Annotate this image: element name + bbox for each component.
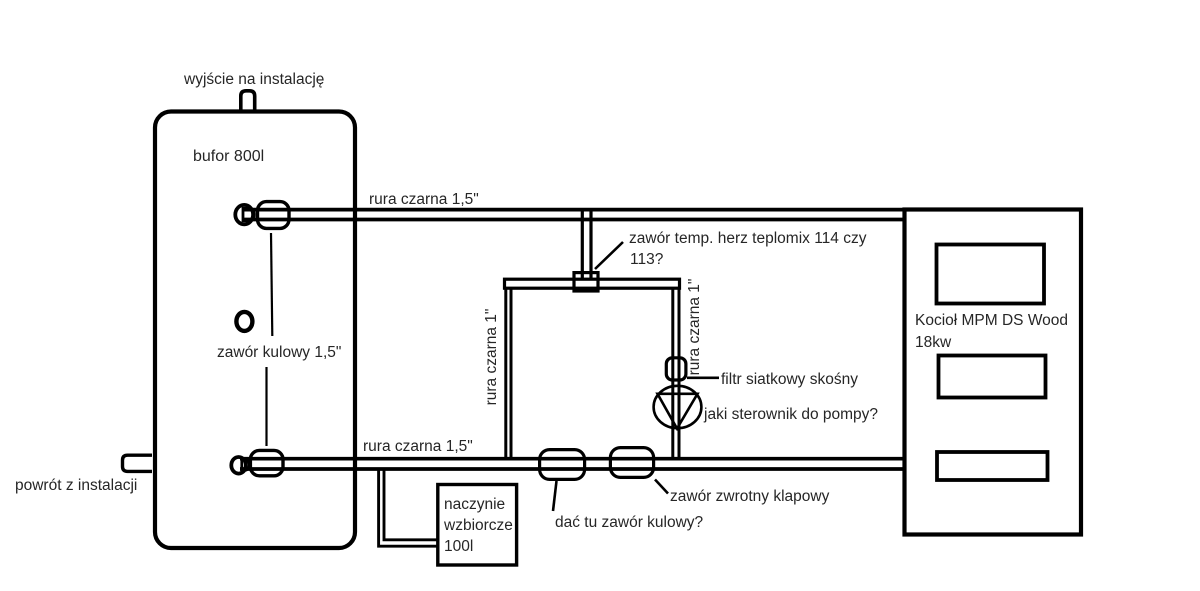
svg-text:100l: 100l [444,538,473,555]
svg-text:wyjście na instalację: wyjście na instalację [183,71,324,88]
svg-text:rura czarna 1": rura czarna 1" [483,309,500,406]
svg-text:113?: 113? [630,251,664,268]
svg-text:powrót z instalacji: powrót z instalacji [15,477,137,494]
svg-text:rura czarna 1": rura czarna 1" [686,279,703,376]
svg-text:rura czarna 1,5": rura czarna 1,5" [369,191,479,208]
svg-text:jaki sterownik do pompy?: jaki sterownik do pompy? [703,406,878,423]
svg-text:18kw: 18kw [915,334,952,351]
svg-text:naczynie: naczynie [444,496,505,513]
svg-text:zawór kulowy 1,5": zawór kulowy 1,5" [217,344,341,361]
svg-text:Kocioł MPM DS Wood: Kocioł MPM DS Wood [915,312,1068,329]
svg-text:bufor 800l: bufor 800l [193,148,264,165]
svg-text:zawór temp. herz teplomix 114: zawór temp. herz teplomix 114 czy [629,230,867,247]
svg-text:filtr siatkowy skośny: filtr siatkowy skośny [721,371,858,388]
svg-text:dać tu zawór kulowy?: dać tu zawór kulowy? [555,514,704,531]
svg-text:wzbiorcze: wzbiorcze [443,517,513,534]
svg-text:zawór zwrotny klapowy: zawór zwrotny klapowy [670,488,830,505]
svg-text:rura czarna 1,5": rura czarna 1,5" [363,438,473,455]
